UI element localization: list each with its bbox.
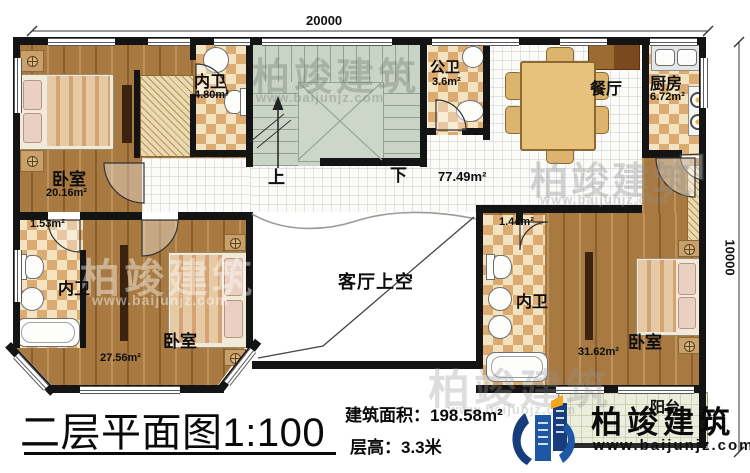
stair-break-mark [250, 114, 291, 148]
brand-logo-icon [505, 393, 587, 469]
room-label-bedroom-bl: 卧室 [163, 327, 197, 352]
door-bedroom-tl [104, 163, 144, 203]
dimension-top-label: 20000 [303, 13, 345, 28]
brand-logo: 柏竣建筑 www.baijunjz.com [505, 393, 750, 471]
title-underline [24, 452, 336, 455]
room-label-public-bath: 公卫 [430, 56, 460, 77]
stair-void-cross [298, 82, 382, 160]
room-area-closet-br: 1.44m² [499, 216, 534, 228]
room-area-bedroom-br: 31.62m² [578, 346, 619, 358]
stair-label-down: 下 [390, 161, 407, 186]
room-area-public-bath: 3.6m² [432, 76, 461, 88]
floorplan-canvas: 20000 10000 柏竣建筑 www.baijunjz.com 柏竣建筑 w… [0, 0, 750, 473]
room-label-bath-br: 内卫 [516, 288, 548, 312]
room-area-bath-tl: 4.80m² [194, 89, 229, 101]
room-area-bedroom-bl: 27.56m² [100, 352, 141, 364]
room-label-bedroom-br: 卧室 [628, 328, 662, 353]
logo-swoosh-left [512, 413, 532, 465]
door-public-bath [436, 100, 466, 130]
stair-label-up: 上 [268, 163, 285, 188]
room-area-hall: 77.49m² [438, 169, 486, 184]
room-label-bath-bl: 内卫 [58, 275, 90, 299]
room-area-closet-bl: 1.53m² [30, 218, 65, 230]
door-bedroom-br [656, 158, 695, 197]
building-area-text: 建筑面积：198.58m² [345, 401, 503, 426]
stair-arrow-head [273, 96, 284, 110]
room-area-bedroom-tl: 20.16m² [46, 187, 87, 199]
page-title: 二层平面图1:100 [20, 400, 325, 458]
brand-website: www.baijunjz.com [593, 437, 750, 454]
logo-building-block [535, 415, 551, 461]
dimension-right-label: 10000 [723, 224, 738, 292]
brand-name: 柏竣建筑 [591, 397, 735, 442]
floor-height-text: 层高：3.3米 [350, 433, 442, 458]
room-area-kitchen: 6.72m² [650, 91, 685, 103]
room-label-void: 客厅上空 [338, 268, 414, 294]
room-label-dining: 餐厅 [590, 75, 622, 99]
void-open-boundary-wave [252, 212, 476, 228]
door-bedroom-bl [142, 220, 178, 256]
